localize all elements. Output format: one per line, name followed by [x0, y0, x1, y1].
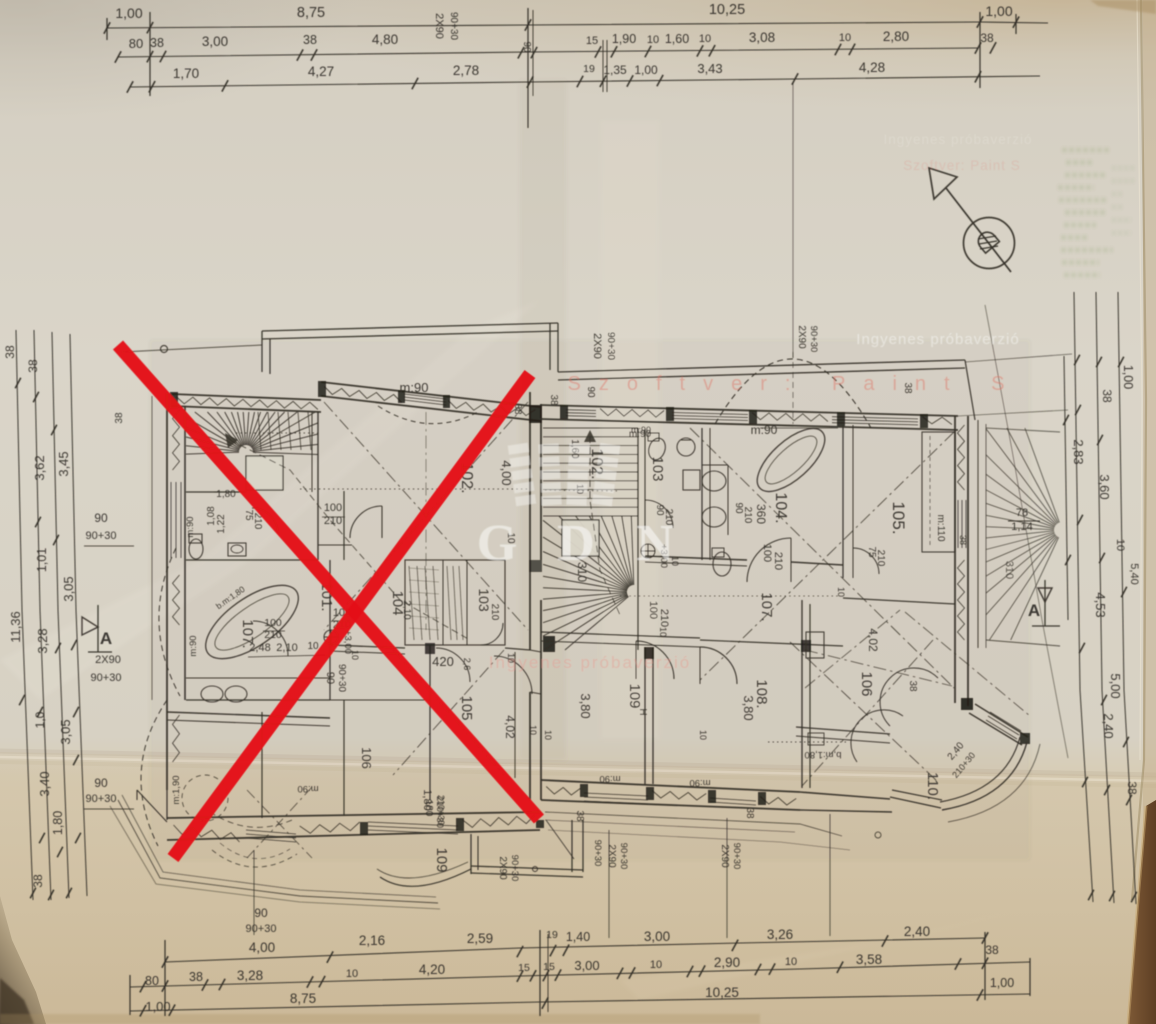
svg-text:H: H: [637, 708, 648, 715]
svg-text:m:90: m:90: [297, 783, 318, 794]
svg-text:106: 106: [359, 747, 374, 769]
svg-text:3,08: 3,08: [749, 30, 775, 45]
svg-text:90: 90: [521, 41, 532, 53]
svg-text:3,40: 3,40: [37, 771, 52, 796]
svg-text:Ingyenes próbaverzió: Ingyenes próbaverzió: [489, 653, 692, 672]
svg-text:m:90: m:90: [185, 516, 196, 537]
svg-text:10: 10: [658, 627, 668, 637]
svg-text:38: 38: [1100, 389, 1114, 403]
svg-text:2,90: 2,90: [714, 955, 740, 970]
svg-text:10: 10: [698, 730, 708, 740]
svg-text:3,58: 3,58: [856, 952, 882, 967]
svg-text:38: 38: [980, 31, 994, 45]
svg-text:G: G: [477, 515, 517, 572]
svg-text:4,53: 4,53: [1093, 592, 1108, 617]
svg-text:38: 38: [114, 412, 125, 424]
svg-text:1,40: 1,40: [566, 930, 590, 944]
svg-text:4,27: 4,27: [308, 64, 334, 79]
svg-text:1,14: 1,14: [1011, 521, 1032, 533]
svg-text:1,00: 1,00: [990, 976, 1014, 990]
svg-text:15: 15: [586, 35, 598, 47]
svg-text:3,00: 3,00: [202, 34, 228, 49]
svg-text:m:90: m:90: [689, 777, 710, 788]
svg-text:360: 360: [754, 504, 768, 524]
svg-text:10,25: 10,25: [709, 2, 745, 18]
svg-text:10: 10: [699, 33, 711, 45]
svg-text:15: 15: [543, 961, 555, 973]
svg-text:110.: 110.: [924, 772, 941, 800]
svg-text:1,00: 1,00: [985, 3, 1012, 19]
svg-text:420: 420: [432, 654, 454, 669]
svg-text:90+30: 90+30: [605, 332, 616, 361]
svg-text:A: A: [100, 629, 112, 648]
svg-text:2X90: 2X90: [606, 844, 617, 868]
svg-text:1,90: 1,90: [612, 32, 636, 46]
svg-text:m:110: m:110: [935, 514, 946, 541]
svg-text:38: 38: [31, 874, 45, 888]
svg-text:10: 10: [1114, 539, 1126, 551]
svg-text:10,25: 10,25: [705, 985, 739, 1000]
svg-text:2,78: 2,78: [453, 63, 479, 78]
svg-text:210+30: 210+30: [436, 795, 446, 825]
svg-text:m:90: m:90: [188, 635, 199, 656]
svg-text:38: 38: [958, 535, 968, 545]
svg-text:11,36: 11,36: [8, 611, 23, 643]
svg-text:3,28: 3,28: [35, 628, 50, 653]
svg-text:4,80: 4,80: [372, 32, 398, 47]
svg-text:2X90: 2X90: [591, 333, 603, 359]
svg-text:8,75: 8,75: [290, 991, 316, 1006]
svg-text:3,45: 3,45: [56, 451, 71, 476]
svg-text:15: 15: [518, 962, 530, 974]
svg-text:3,05: 3,05: [61, 576, 76, 601]
svg-text:210: 210: [489, 604, 500, 621]
svg-text:103: 103: [649, 456, 666, 481]
svg-text:38: 38: [574, 810, 585, 822]
svg-text:10: 10: [836, 587, 846, 597]
svg-text:3,60: 3,60: [1097, 474, 1112, 499]
svg-text:2,40: 2,40: [904, 924, 930, 939]
svg-text:1,00: 1,00: [115, 5, 142, 21]
svg-text:210: 210: [658, 609, 670, 627]
svg-text:Ingyenes próbaverzió: Ingyenes próbaverzió: [883, 132, 1032, 147]
svg-text:1,22: 1,22: [216, 514, 227, 534]
svg-text:2X90: 2X90: [433, 13, 445, 39]
svg-text:3,05: 3,05: [58, 719, 73, 744]
svg-text:10: 10: [543, 730, 553, 740]
svg-text:4,20: 4,20: [419, 962, 445, 977]
svg-text:109: 109: [433, 847, 450, 872]
svg-text:90: 90: [94, 776, 108, 790]
svg-text:90+30: 90+30: [336, 664, 347, 693]
svg-text:38: 38: [303, 33, 317, 47]
svg-text:3,80: 3,80: [741, 695, 756, 720]
svg-text:2X90: 2X90: [95, 654, 121, 666]
svg-text:m:90: m:90: [400, 380, 429, 395]
svg-text:2,40: 2,40: [1101, 713, 1116, 738]
svg-text:90+30: 90+30: [91, 672, 122, 684]
svg-text:10: 10: [785, 956, 797, 968]
svg-text:3,43: 3,43: [697, 61, 722, 76]
svg-text:38: 38: [548, 394, 559, 406]
svg-text:100: 100: [324, 502, 342, 514]
svg-text:3,62: 3,62: [32, 455, 47, 480]
svg-text:m:1,90: m:1,90: [171, 775, 182, 804]
svg-text:80: 80: [145, 974, 159, 988]
svg-text:2,10: 2,10: [401, 600, 412, 620]
svg-text:90+30: 90+30: [86, 530, 117, 542]
svg-text:8,75: 8,75: [297, 5, 325, 21]
svg-text:2,16: 2,16: [359, 933, 385, 948]
svg-text:D: D: [557, 515, 595, 572]
svg-text:m:90: m:90: [631, 425, 651, 435]
svg-text:180: 180: [423, 800, 434, 817]
svg-text:90+30: 90+30: [731, 843, 742, 870]
svg-text:38: 38: [189, 970, 203, 984]
svg-text:1,80: 1,80: [216, 489, 236, 500]
svg-text:210: 210: [772, 552, 784, 570]
svg-text:2,48: 2,48: [249, 642, 270, 654]
svg-text:A: A: [1028, 601, 1040, 620]
svg-text:10: 10: [528, 725, 538, 735]
svg-text:b,m:1,80: b,m:1,80: [805, 749, 842, 760]
svg-text:1,01: 1,01: [35, 548, 49, 572]
svg-text:90+30: 90+30: [86, 793, 117, 805]
svg-text:80: 80: [129, 36, 143, 51]
svg-text:210: 210: [742, 507, 753, 524]
svg-text:38: 38: [150, 36, 164, 50]
svg-text:1,70: 1,70: [173, 66, 199, 81]
svg-text:100: 100: [647, 601, 659, 619]
svg-text:90+30: 90+30: [246, 923, 277, 935]
svg-text:90+30: 90+30: [808, 326, 819, 353]
svg-text:1,00: 1,00: [1121, 365, 1135, 389]
svg-text:105.: 105.: [889, 501, 908, 534]
svg-text:10: 10: [650, 959, 662, 971]
svg-text:4,02: 4,02: [503, 715, 517, 739]
svg-text:10: 10: [839, 32, 851, 44]
svg-text:3,00: 3,00: [574, 958, 599, 973]
svg-text:3,80: 3,80: [578, 693, 593, 718]
svg-text:1,80: 1,80: [51, 811, 65, 835]
svg-text:38: 38: [26, 359, 40, 373]
svg-text:90+30: 90+30: [448, 12, 459, 41]
svg-text:107.: 107.: [758, 592, 775, 621]
svg-text:1,00: 1,00: [145, 999, 170, 1014]
svg-text:90: 90: [324, 672, 336, 684]
svg-text:38: 38: [744, 807, 755, 819]
svg-text:N: N: [636, 515, 674, 572]
svg-text:90+30: 90+30: [592, 840, 603, 867]
svg-text:2X90: 2X90: [719, 844, 730, 868]
svg-text:3,26: 3,26: [767, 927, 793, 942]
svg-text:1,00: 1,00: [634, 63, 658, 77]
svg-text:38: 38: [3, 345, 17, 359]
svg-text:10: 10: [346, 968, 358, 980]
svg-text:Szoftver: Paint S: Szoftver: Paint S: [903, 158, 1021, 173]
svg-text:310: 310: [1003, 561, 1015, 579]
svg-text:2,80: 2,80: [883, 29, 909, 44]
svg-text:106: 106: [858, 671, 875, 696]
svg-text:5,00: 5,00: [1108, 673, 1123, 698]
svg-text:100: 100: [761, 544, 773, 562]
svg-text:38: 38: [907, 680, 918, 692]
svg-text:19: 19: [583, 63, 595, 75]
svg-text:2X90: 2X90: [497, 856, 508, 880]
svg-text:38: 38: [985, 943, 999, 957]
svg-text:m:90: m:90: [599, 773, 620, 784]
svg-text:m:90: m:90: [751, 423, 778, 437]
svg-text:5,40: 5,40: [1128, 563, 1140, 584]
svg-text:90+30: 90+30: [509, 855, 520, 882]
svg-text:4,00: 4,00: [249, 940, 275, 955]
svg-text:38: 38: [1125, 781, 1139, 795]
svg-text:90: 90: [94, 511, 108, 525]
svg-text:1,0: 1,0: [33, 711, 47, 728]
svg-text:2,6: 2,6: [462, 658, 472, 671]
svg-text:3,28: 3,28: [237, 968, 263, 983]
svg-text:3,00: 3,00: [644, 929, 670, 944]
svg-text:104.: 104.: [772, 492, 789, 523]
svg-text:1,60: 1,60: [665, 32, 689, 46]
svg-text:2,59: 2,59: [467, 931, 493, 946]
svg-text:109: 109: [626, 683, 643, 708]
svg-text:10: 10: [647, 34, 659, 46]
svg-text:Szoftver: Paint S: Szoftver: Paint S: [568, 373, 1023, 395]
svg-text:Ingyenes próbaverzió: Ingyenes próbaverzió: [856, 331, 1019, 348]
svg-text:90: 90: [254, 906, 268, 920]
svg-text:90+30: 90+30: [618, 843, 629, 870]
svg-text:4,28: 4,28: [859, 60, 885, 75]
svg-text:10: 10: [307, 641, 319, 652]
svg-text:2X90: 2X90: [796, 325, 807, 349]
svg-text:2,83: 2,83: [1071, 439, 1086, 464]
